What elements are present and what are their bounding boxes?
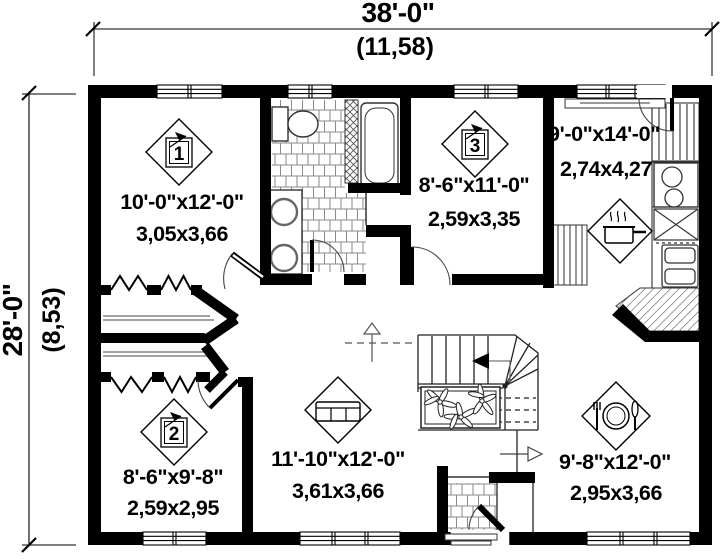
living-dim-ft: 11'-10"x12'-0" (271, 447, 405, 471)
floor-plan: 38'-0" (11,58) 28'-0" (8,53) 1 2 3 10'-0… (0, 0, 720, 559)
living-room-icon (305, 377, 371, 443)
kitchen-dim-ft: 9'-0"x14'-0" (548, 122, 660, 146)
entry-tile-floor (448, 483, 497, 530)
stove-icon (654, 209, 698, 243)
bathtub-icon (361, 103, 398, 187)
bedroom3-dim-ft: 8'-6"x11'-0" (419, 173, 530, 197)
bedroom3-window (454, 85, 518, 98)
refrigerator-icon (662, 245, 698, 287)
kitchen-icon (588, 199, 652, 263)
overall-width-metric: (11,58) (356, 33, 434, 61)
bedroom3-door (412, 247, 450, 285)
bedroom1-number: 1 (174, 144, 185, 165)
bedroom1-window (157, 85, 222, 98)
overall-depth-label: 28'-0" (0, 284, 28, 357)
kitchen-sink-icon (654, 163, 698, 207)
ceiling-break-marker (345, 323, 416, 362)
kitchen-pantry (552, 225, 587, 285)
bedroom1-door (224, 254, 264, 289)
dining-dim-ft: 9'-8"x12'-0" (559, 450, 671, 474)
bedroom2-dim-m: 2,59x2,95 (127, 496, 219, 520)
overall-depth-metric: (8,53) (38, 287, 66, 352)
kitchen-window-counter (565, 99, 665, 108)
planter-box (421, 379, 505, 438)
linen-closet-hatch (345, 100, 358, 183)
bedroom2-window (143, 532, 206, 545)
dining-window (587, 532, 690, 545)
floor-plan-drawing: 38'-0" (11,58) 28'-0" (8,53) 1 2 3 10'-0… (0, 0, 720, 559)
living-window (300, 532, 400, 545)
bedroom1-dim-m: 3,05x3,66 (136, 222, 228, 246)
bedroom3-number: 3 (470, 136, 481, 157)
bedroom3-dim-m: 2,59x3,35 (428, 207, 520, 231)
dining-dim-m: 2,95x3,66 (570, 481, 662, 505)
section-arrow-marker (500, 447, 542, 461)
bedroom1-dim-ft: 10'-0"x12'-0" (120, 190, 243, 214)
dining-room-icon (582, 382, 650, 450)
stairs-direction-arrow (472, 353, 510, 384)
bedroom2-number: 2 (169, 424, 180, 445)
living-dim-m: 3,61x3,66 (292, 479, 384, 503)
bathroom-window (288, 85, 332, 98)
overall-width-label: 38'-0" (362, 0, 435, 28)
kitchen-dim-m: 2,74x4,27 (560, 157, 652, 181)
bedroom2-dim-ft: 8'-6"x9'-8" (123, 465, 223, 489)
vanity-double-sink (267, 190, 302, 274)
